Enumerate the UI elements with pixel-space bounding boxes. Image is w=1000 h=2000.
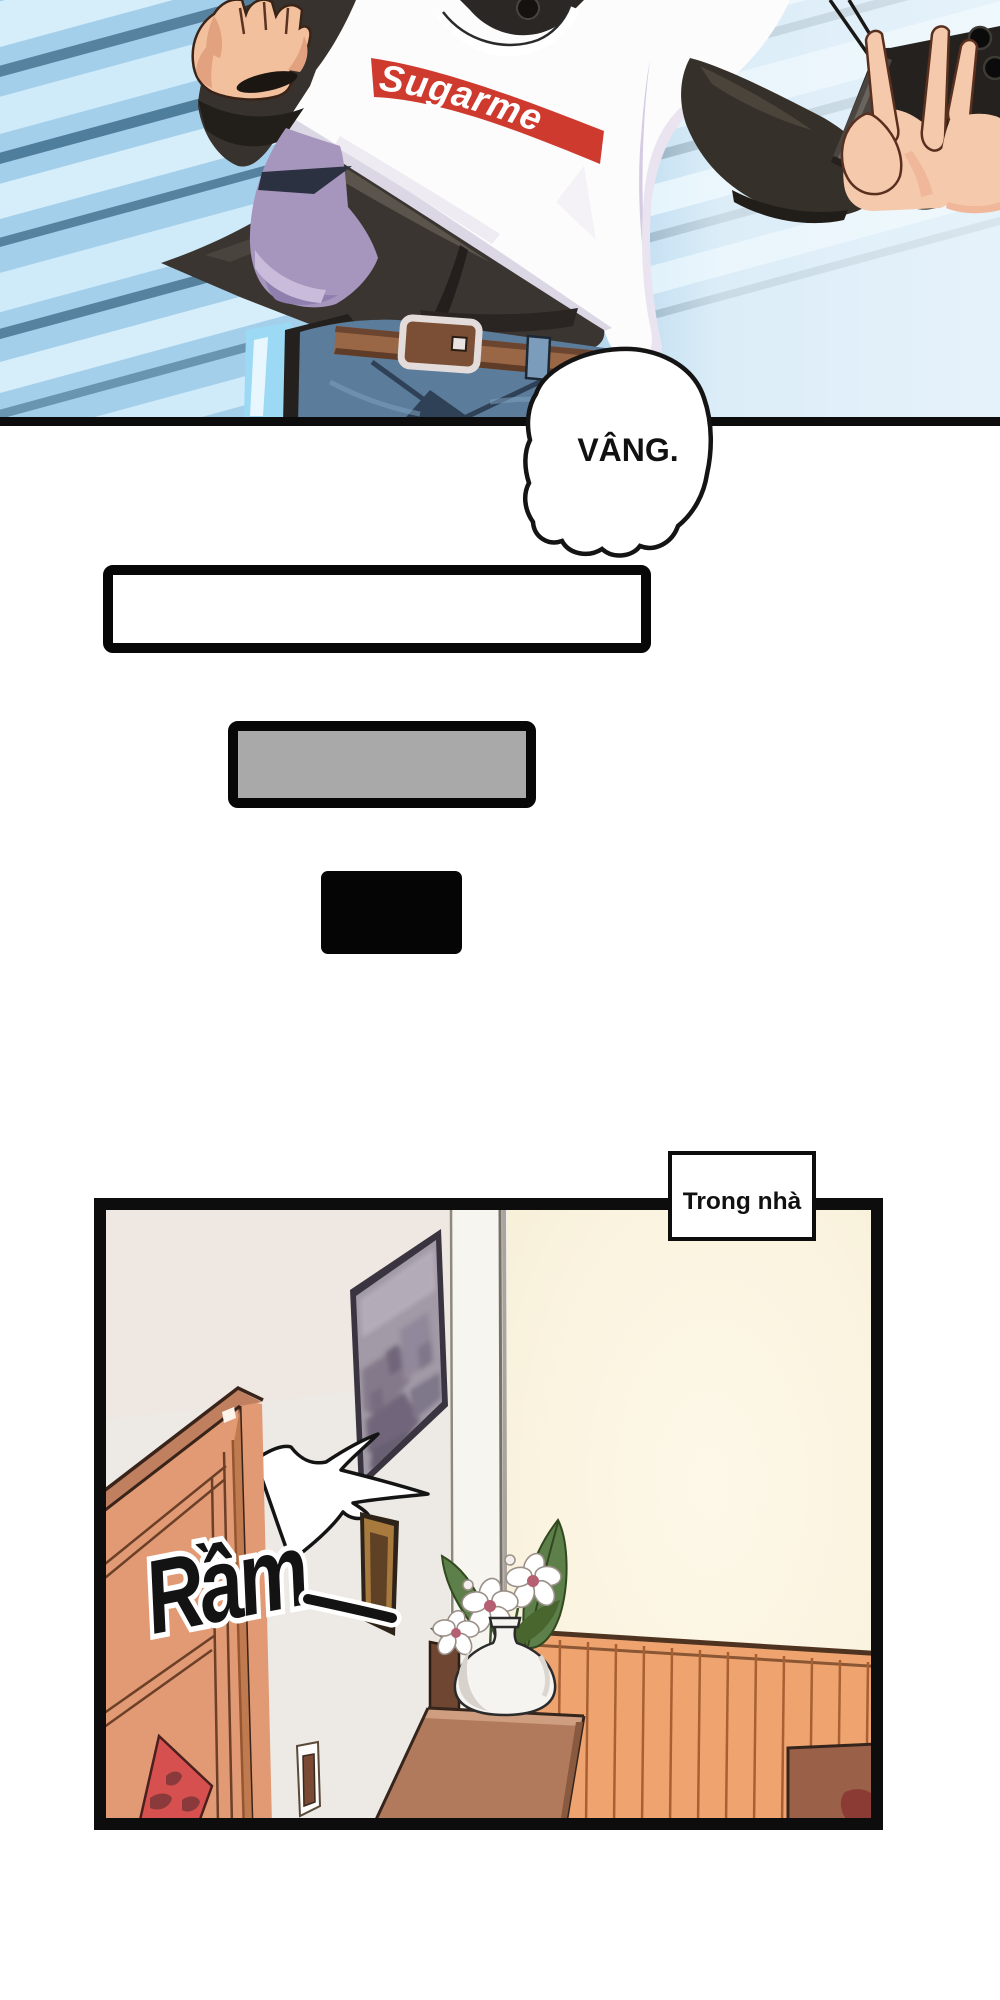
svg-text:Trong nhà: Trong nhà <box>683 1188 802 1215</box>
svg-text:VÂNG.: VÂNG. <box>577 432 678 468</box>
